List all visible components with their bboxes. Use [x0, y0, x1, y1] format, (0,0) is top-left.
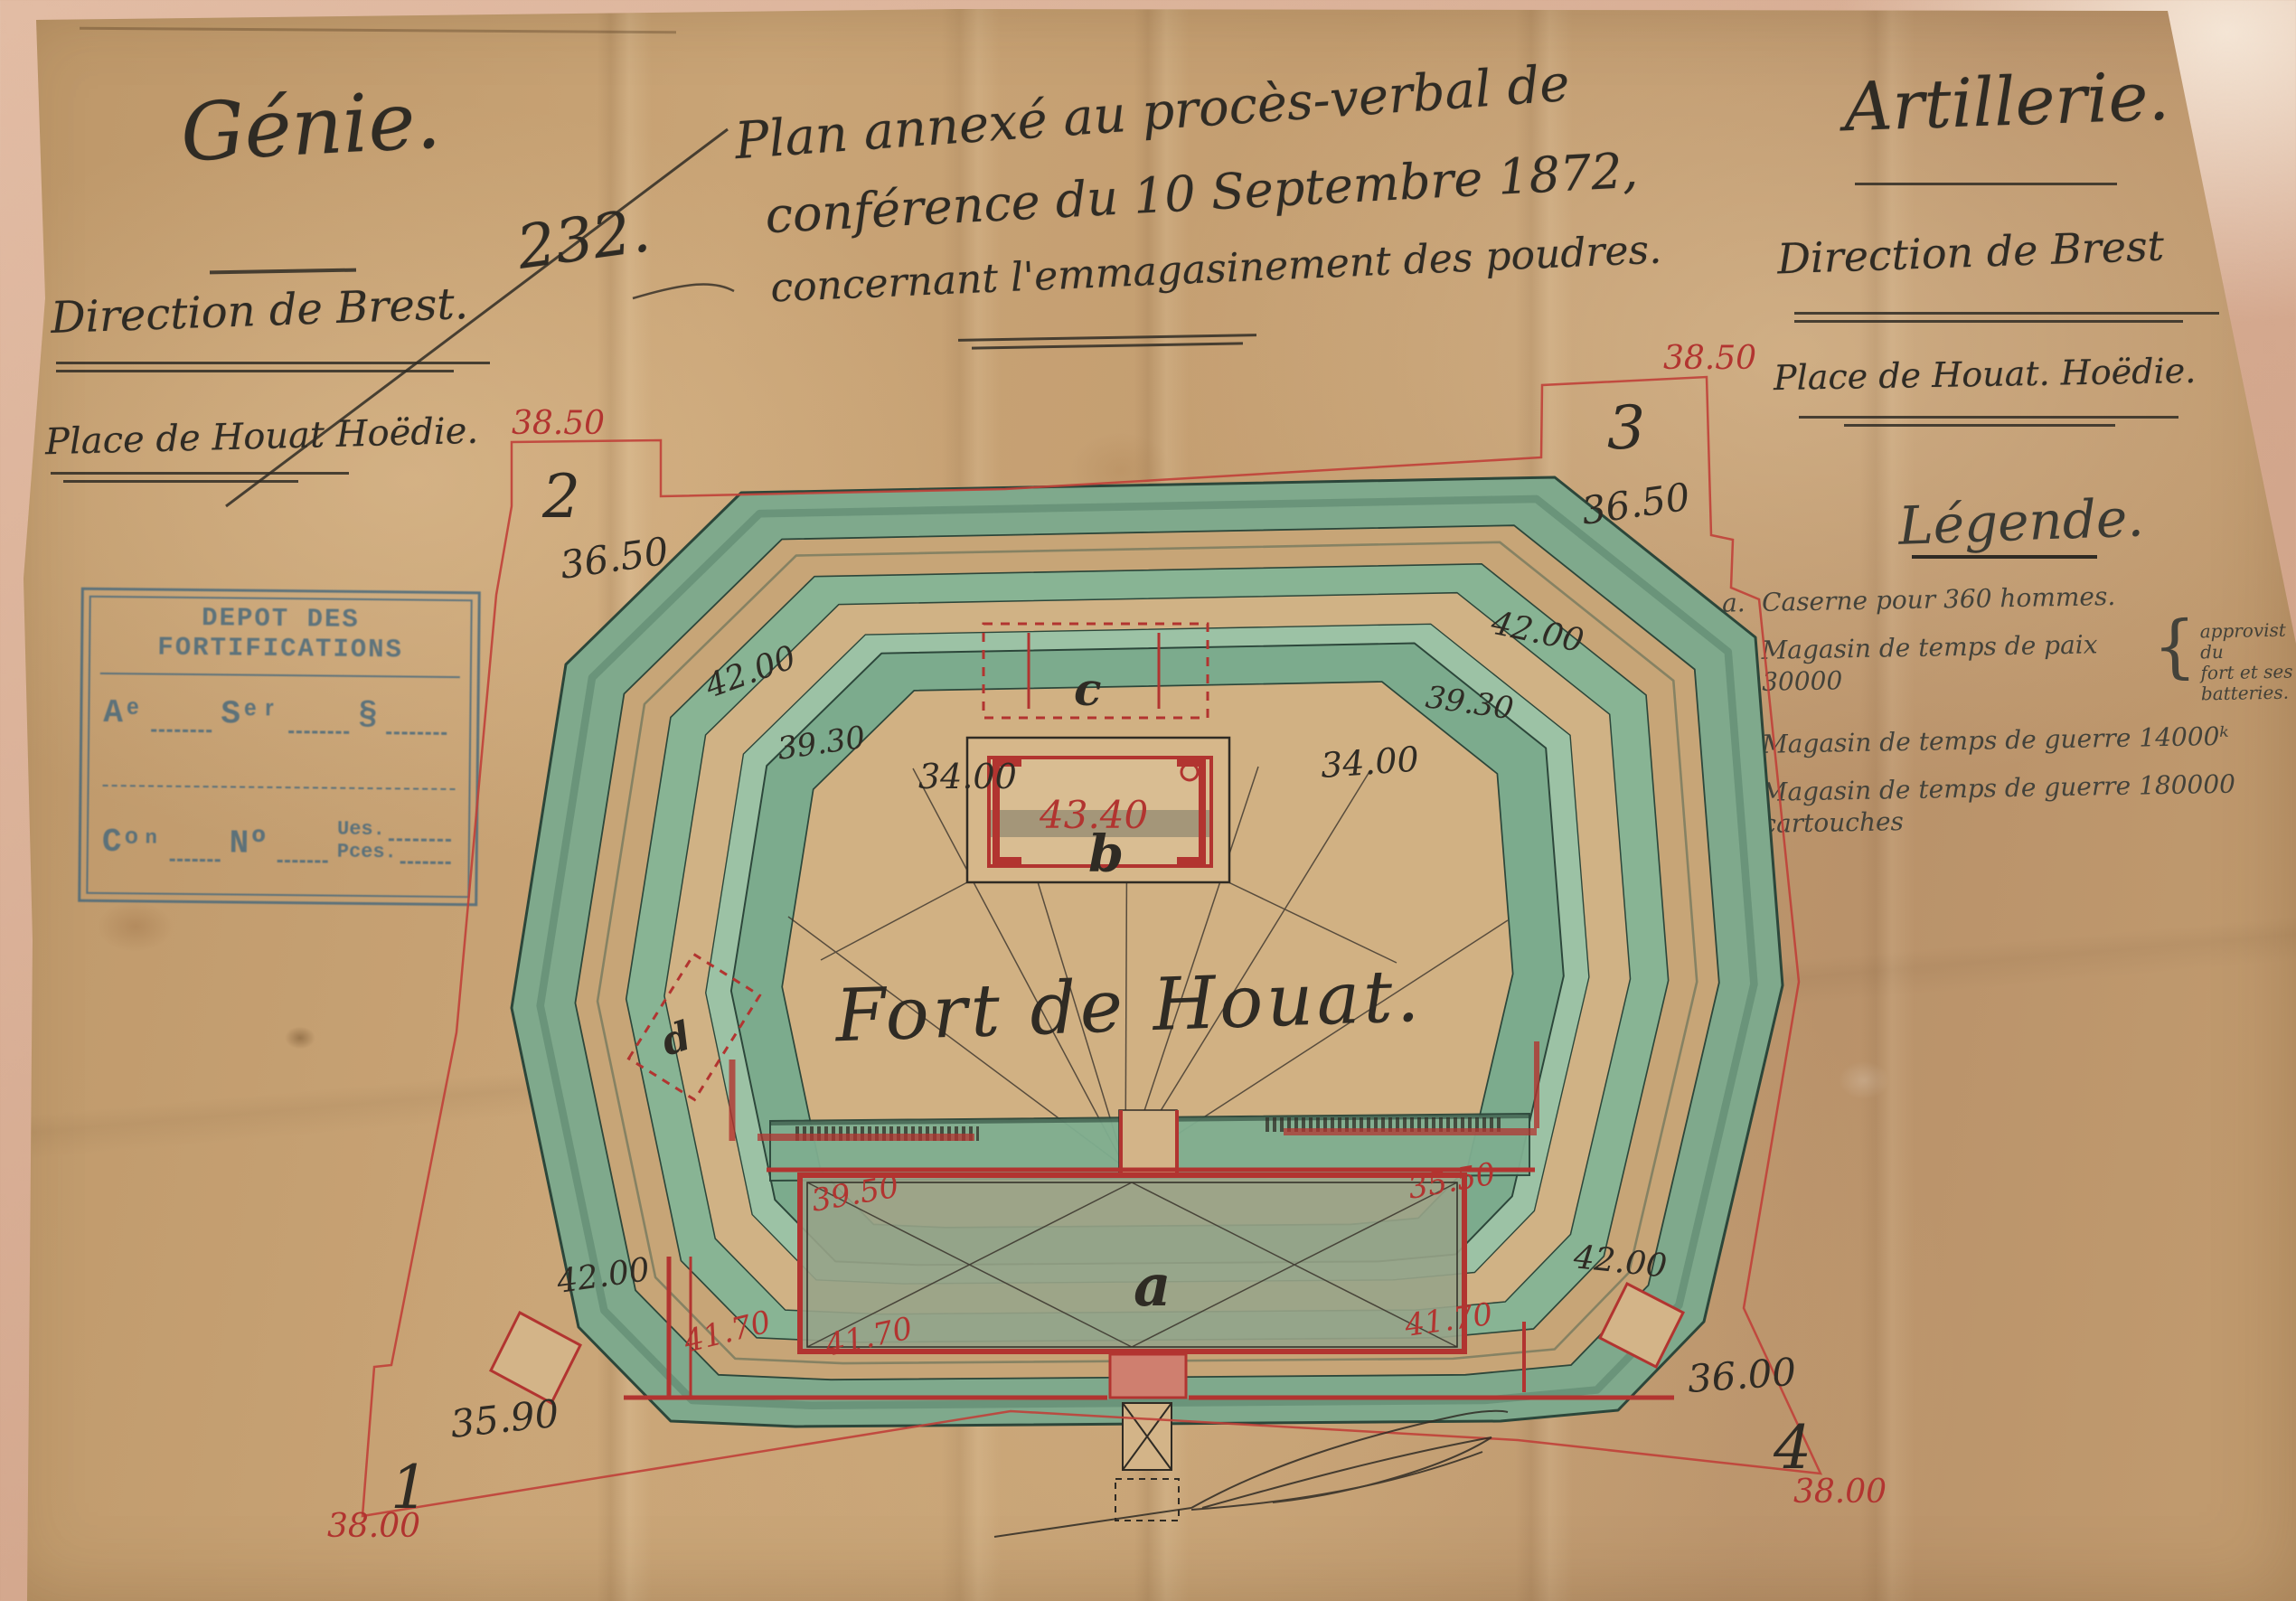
parade-gate [1119, 1110, 1177, 1175]
parade-elev-e: 34.00 [1320, 739, 1421, 785]
building-label-c: c [1074, 663, 1101, 716]
plan-sheet: Génie. Direction de Brest. Place de Houa… [0, 0, 2296, 1601]
boundary-elev-2: 38.50 [512, 405, 605, 442]
ground-elev-1: 35.90 [448, 1391, 561, 1446]
corner-number-3: 3 [1607, 393, 1645, 463]
archival-photo: Génie. Direction de Brest. Place de Houa… [0, 0, 2296, 1601]
boundary-elev-3: 38.50 [1663, 340, 1756, 377]
parade-elev-w: 34.00 [918, 757, 1017, 796]
ground-elev-3: 36.50 [1579, 475, 1693, 533]
title-leader-stroke [633, 284, 734, 298]
corner-number-4: 4 [1773, 1413, 1811, 1483]
boundary-elev-1: 38.00 [327, 1508, 420, 1545]
corner-number-2: 2 [541, 462, 580, 532]
magazine-roof-elev: 43.40 [1039, 793, 1148, 837]
ground-elev-4: 36.00 [1686, 1350, 1797, 1401]
building-label-a: a [1134, 1252, 1171, 1320]
signature-flourish [994, 1411, 1508, 1537]
fort-plan-drawing: 2 3 1 4 36.50 36.50 35.90 36.00 42.00 42… [0, 0, 2296, 1601]
gorge-gate [1110, 1354, 1186, 1521]
boundary-elev-4: 38.00 [1793, 1474, 1887, 1511]
number-slash-stroke [226, 129, 728, 506]
